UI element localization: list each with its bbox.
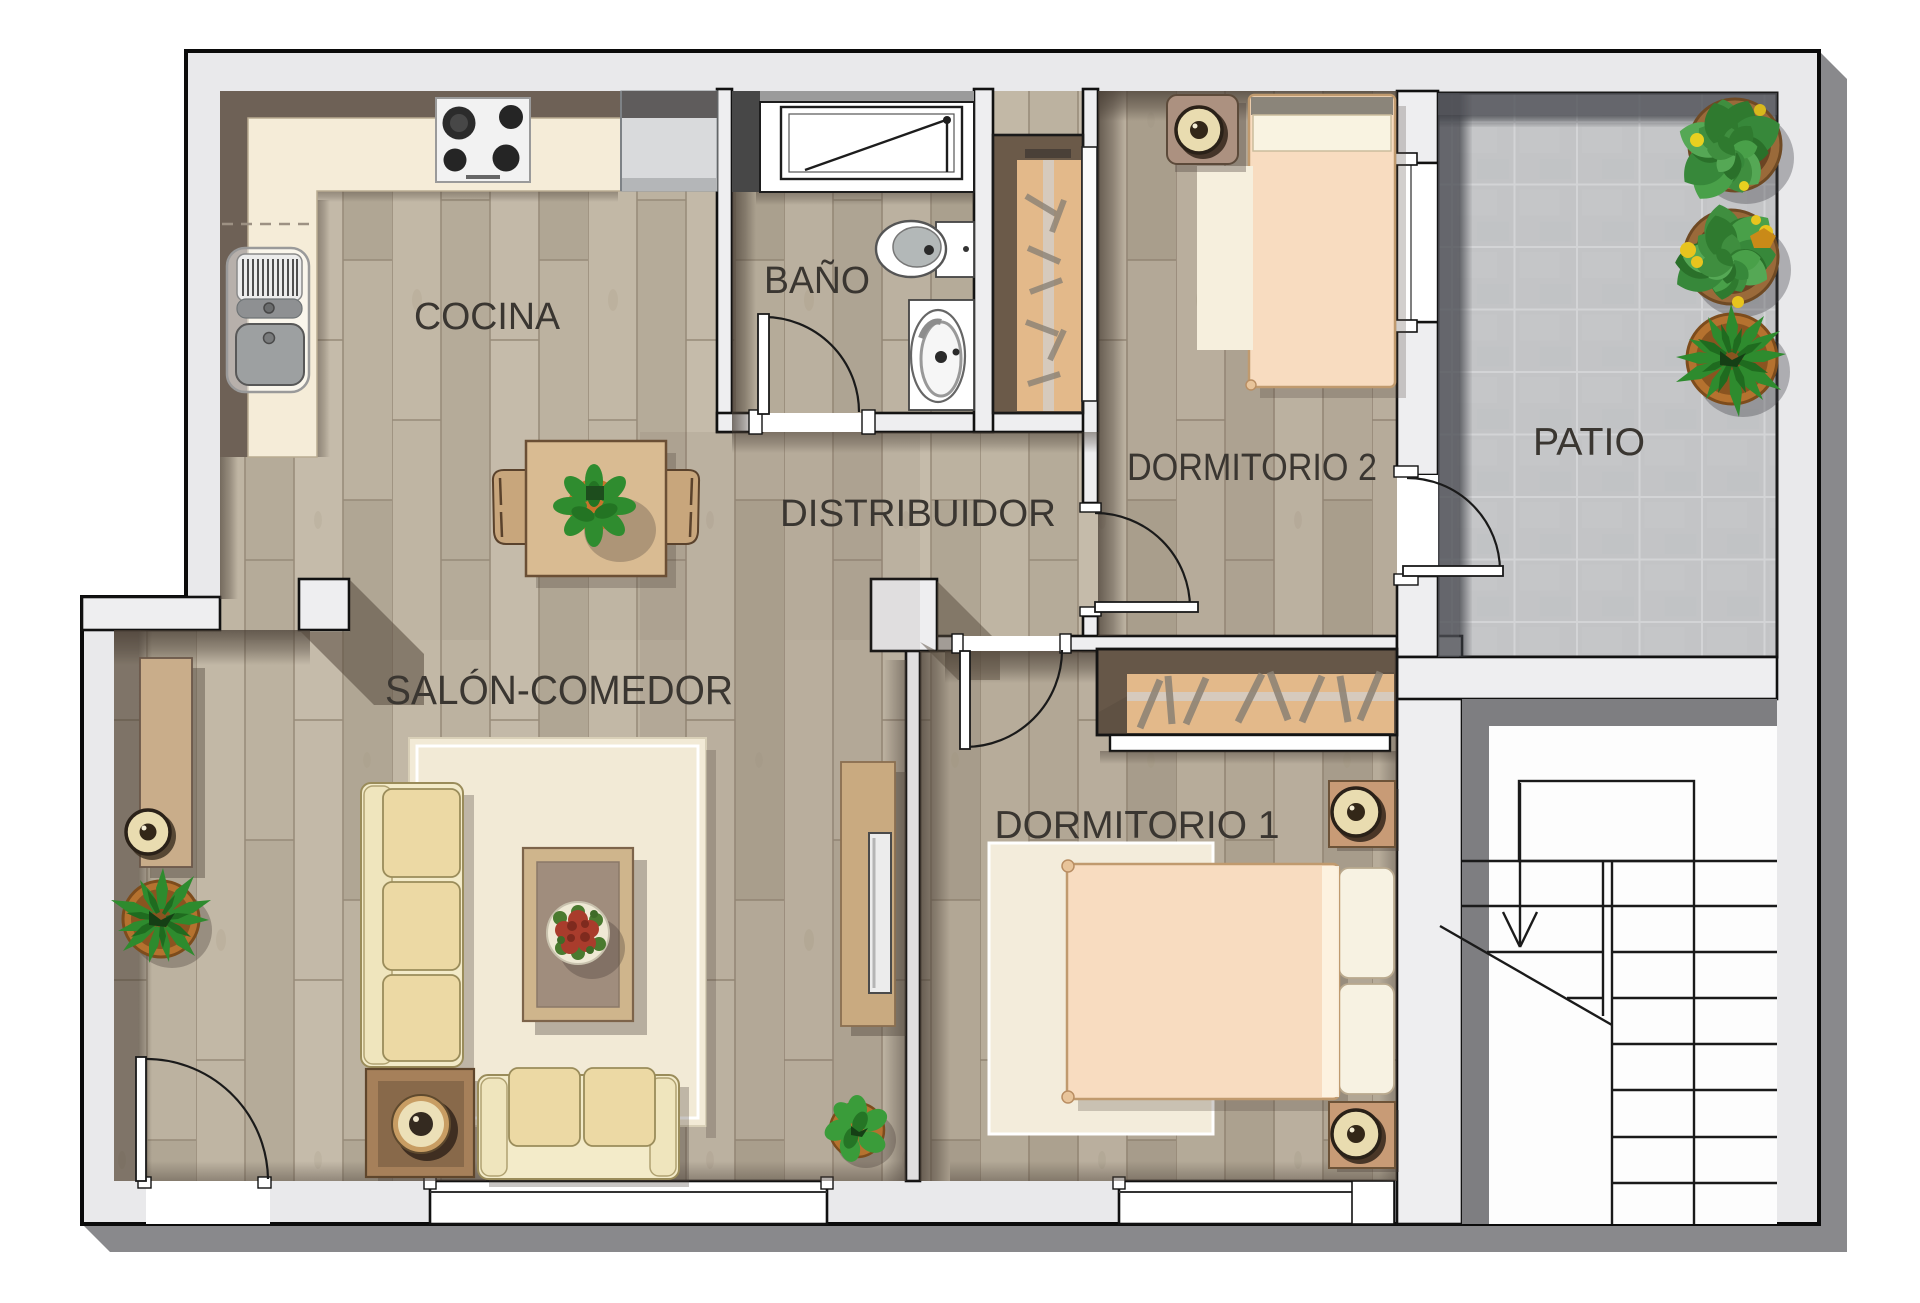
svg-text:BAÑO: BAÑO xyxy=(764,259,870,302)
svg-text:PATIO: PATIO xyxy=(1533,421,1645,464)
svg-text:COCINA: COCINA xyxy=(414,296,561,338)
svg-text:DISTRIBUIDOR: DISTRIBUIDOR xyxy=(780,493,1056,535)
svg-text:DORMITORIO 2: DORMITORIO 2 xyxy=(1127,447,1377,489)
svg-text:DORMITORIO 1: DORMITORIO 1 xyxy=(995,804,1280,847)
svg-text:SALÓN-COMEDOR: SALÓN-COMEDOR xyxy=(385,667,733,713)
